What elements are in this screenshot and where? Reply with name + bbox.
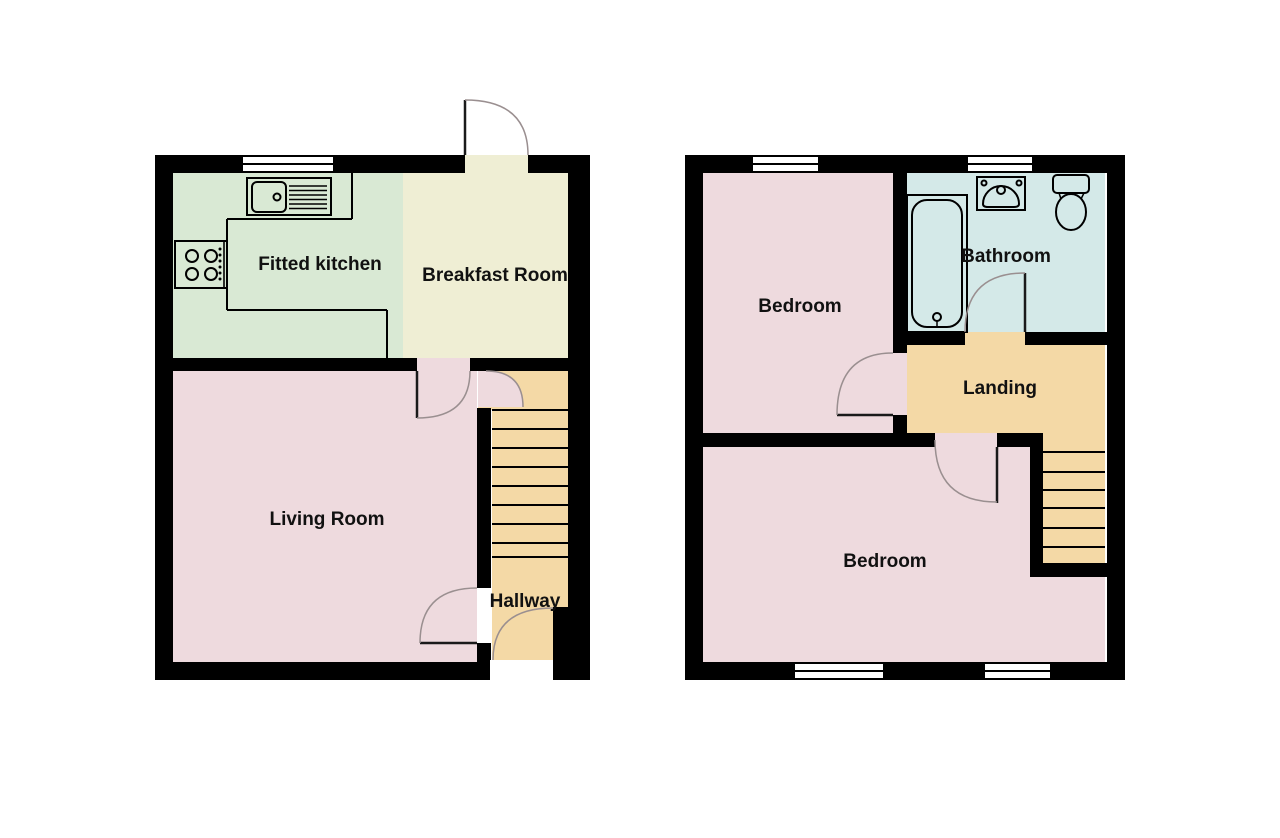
door-breakfast-entry [465, 100, 528, 155]
floorplan-drawing: Fitted kitchen Breakfast Room Living Roo… [0, 0, 1280, 838]
door-swing-arc [465, 100, 528, 155]
window-icon-bedroom1-top [753, 157, 818, 171]
staircase-area-ground [492, 408, 568, 558]
room-label-hallway: Hallway [490, 591, 561, 612]
door-gap-living-room [417, 358, 470, 371]
door-gap-bedroom-1 [893, 353, 907, 415]
room-label-bathroom: Bathroom [961, 246, 1051, 267]
floorplan-canvas: Fitted kitchen Breakfast Room Living Roo… [0, 0, 1280, 838]
room-label-landing: Landing [963, 378, 1037, 399]
room-label-bedroom-2: Bedroom [843, 551, 926, 572]
door-gap-front-door [490, 660, 553, 681]
first-floor-plan: Bedroom Bathroom Landing Bedroom [685, 155, 1125, 680]
window-icon-bathroom-top [968, 157, 1032, 171]
window-icon-kitchen [243, 157, 333, 171]
door-gap-bathroom [965, 332, 1025, 345]
door-gap-bedroom-2 [935, 433, 997, 447]
window-icon-bedroom2-bottom-left [795, 664, 883, 678]
ground-floor-plan: Fitted kitchen Breakfast Room Living Roo… [155, 100, 590, 681]
room-label-fitted-kitchen: Fitted kitchen [258, 254, 382, 275]
window-icon-bedroom2-bottom-right [985, 664, 1050, 678]
room-area-bedroom-2-lower [703, 577, 1105, 662]
room-label-living-room: Living Room [269, 509, 384, 530]
room-label-bedroom-1: Bedroom [758, 296, 841, 317]
door-gap-breakfast-entry [465, 155, 528, 173]
room-label-breakfast-room: Breakfast Room [422, 265, 568, 286]
